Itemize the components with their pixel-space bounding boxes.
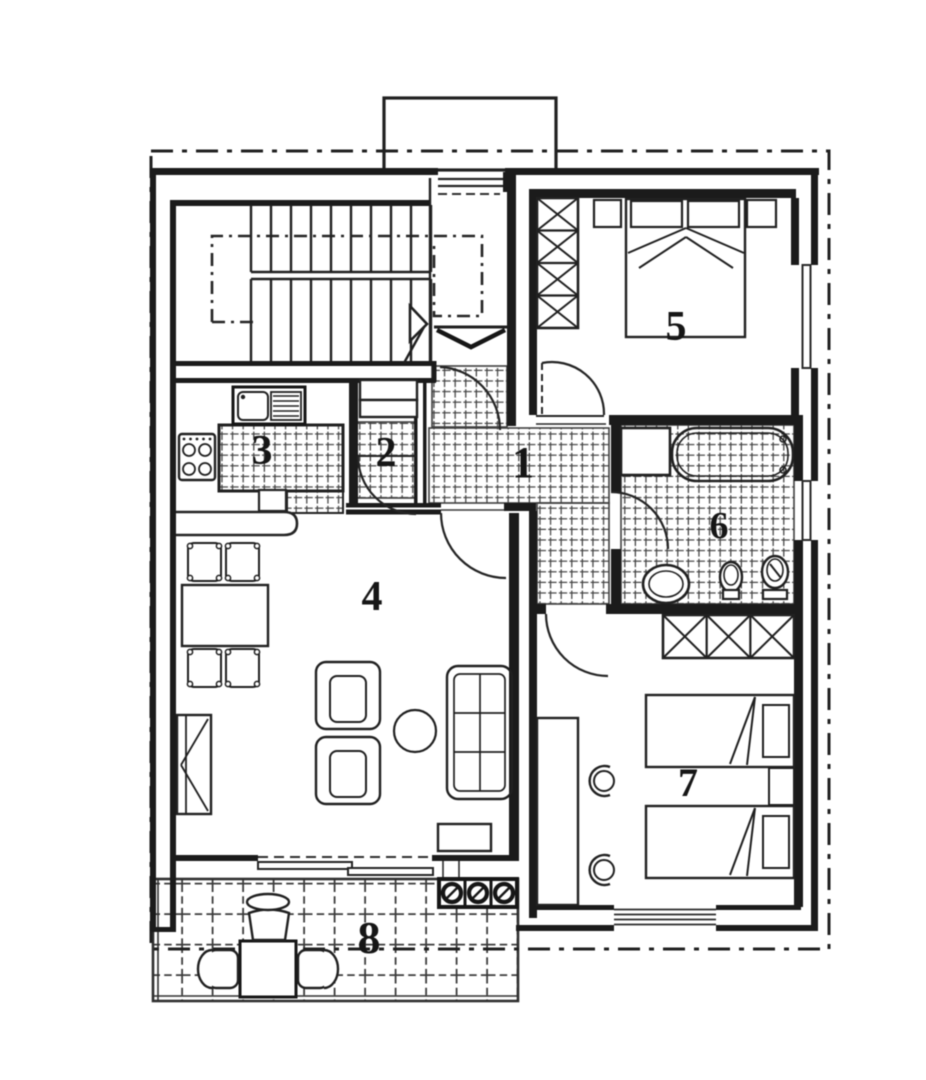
svg-text:7: 7	[678, 760, 698, 805]
svg-text:4: 4	[362, 574, 383, 620]
svg-text:1: 1	[512, 438, 534, 487]
svg-text:5: 5	[666, 304, 687, 350]
svg-text:2: 2	[376, 430, 397, 476]
svg-text:3: 3	[252, 428, 273, 474]
svg-text:6: 6	[710, 505, 729, 547]
svg-text:8: 8	[358, 912, 381, 963]
